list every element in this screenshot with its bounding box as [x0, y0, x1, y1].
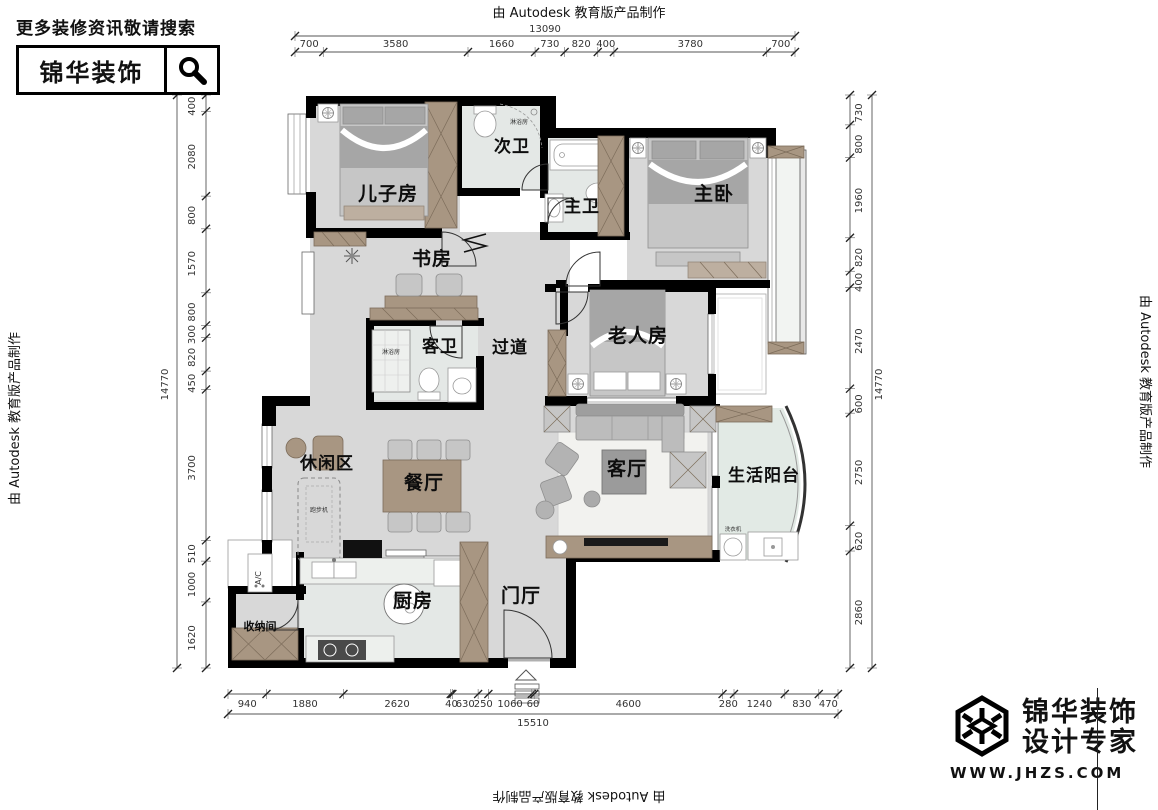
dimension-bottom: 9401880262040630250106060460028012408304…: [224, 689, 842, 729]
room-label-storage: 收纳间: [244, 619, 277, 633]
svg-text:700: 700: [300, 39, 319, 50]
label-ac: A/C: [254, 571, 263, 585]
room-label-bath2: 次卫: [494, 136, 530, 157]
svg-text:400: 400: [854, 273, 865, 292]
label-shower-bath2: 淋浴房: [510, 118, 528, 126]
svg-text:510: 510: [187, 544, 198, 563]
svg-text:3780: 3780: [678, 39, 703, 50]
svg-text:1620: 1620: [187, 625, 198, 650]
label-washer: 洗衣机: [725, 525, 742, 533]
svg-text:2750: 2750: [854, 460, 865, 485]
room-label-son-room: 儿子房: [357, 182, 418, 205]
room-label-living: 客厅: [607, 457, 647, 480]
room-label-master-bed: 主卧: [694, 183, 734, 205]
room-label-dining: 餐厅: [404, 471, 444, 494]
svg-text:1570: 1570: [187, 251, 198, 276]
dimension-left: 4002080800157080030082045037005101000162…: [160, 91, 211, 672]
cube-logo-icon: [950, 694, 1014, 762]
svg-text:470: 470: [819, 699, 838, 710]
svg-text:820: 820: [854, 248, 865, 267]
svg-text:1240: 1240: [747, 699, 772, 710]
svg-text:800: 800: [187, 206, 198, 225]
svg-text:800: 800: [854, 135, 865, 154]
foyer-furniture: [460, 542, 488, 662]
svg-text:14770: 14770: [874, 369, 885, 401]
watermark-top: 由 Autodesk 教育版产品制作: [493, 2, 666, 21]
svg-text:4600: 4600: [616, 699, 641, 710]
svg-text:400: 400: [187, 97, 198, 116]
svg-text:1960: 1960: [854, 188, 865, 213]
brand-logo: 锦华装饰 设计专家 WWW.JHZS.COM: [950, 694, 1155, 782]
room-label-balcony: 生活阳台: [728, 465, 800, 486]
svg-text:2860: 2860: [854, 600, 865, 625]
logo-subtitle: 设计专家: [1022, 728, 1138, 758]
search-promo: 更多装修资讯敬请搜索 锦华装饰: [16, 14, 220, 95]
svg-text:820: 820: [572, 39, 591, 50]
room-label-guest-bath: 客卫: [421, 336, 458, 357]
border-line: [1097, 688, 1098, 810]
dimension-right: 730800196082040024706002750620286014770: [845, 91, 885, 672]
room-label-master-bath: 主卫: [564, 196, 600, 217]
svg-text:730: 730: [854, 103, 865, 122]
svg-text:13090: 13090: [529, 24, 561, 35]
floorplan-canvas: 由 Autodesk 教育版产品制作 由 Autodesk 教育版产品制作 由 …: [0, 0, 1158, 810]
svg-text:14770: 14770: [160, 369, 171, 401]
svg-text:3580: 3580: [383, 39, 408, 50]
logo-brand: 锦华装饰: [1022, 698, 1138, 728]
svg-text:600: 600: [854, 394, 865, 413]
svg-text:700: 700: [771, 39, 790, 50]
svg-text:250: 250: [474, 699, 493, 710]
label-shower-gbath: 淋浴房: [382, 348, 400, 356]
svg-text:800: 800: [187, 303, 198, 322]
logo-names: 锦华装饰 设计专家: [1022, 698, 1138, 758]
promo-tagline: 更多装修资讯敬请搜索: [16, 14, 220, 39]
svg-text:630: 630: [456, 699, 475, 710]
floorplan-svg: 儿子房 次卫 主卫 主卧 书房 客卫 过道 老人房 休闲区 餐厅 客厅 生活阳台…: [0, 0, 1158, 810]
svg-text:280: 280: [719, 699, 738, 710]
svg-text:620: 620: [854, 532, 865, 551]
svg-text:60: 60: [527, 699, 540, 710]
svg-text:2620: 2620: [384, 699, 409, 710]
svg-text:1000: 1000: [187, 572, 198, 597]
room-label-study: 书房: [412, 247, 452, 270]
room-label-elder-room: 老人房: [608, 324, 668, 347]
svg-text:2080: 2080: [187, 144, 198, 169]
svg-text:300: 300: [187, 325, 198, 344]
svg-text:3700: 3700: [187, 455, 198, 480]
promo-brand: 锦华装饰: [19, 48, 167, 92]
promo-search-box: 锦华装饰: [16, 45, 220, 95]
svg-text:1060: 1060: [497, 699, 522, 710]
label-treadmill: 跑步机: [310, 506, 328, 514]
svg-text:730: 730: [540, 39, 559, 50]
svg-text:1660: 1660: [489, 39, 514, 50]
search-icon: [167, 48, 217, 92]
room-label-foyer: 门厅: [501, 584, 541, 607]
room-label-leisure: 休闲区: [299, 453, 354, 474]
logo-website: WWW.JHZS.COM: [950, 764, 1155, 782]
svg-text:2470: 2470: [854, 328, 865, 353]
svg-text:450: 450: [187, 374, 198, 393]
svg-text:15510: 15510: [517, 718, 549, 729]
svg-text:940: 940: [238, 699, 257, 710]
svg-text:400: 400: [596, 39, 615, 50]
watermark-right: 由 Autodesk 教育版产品制作: [1137, 295, 1156, 468]
room-label-corridor: 过道: [492, 337, 528, 358]
dimension-top: 70035801660730820400378070013090: [291, 24, 799, 57]
svg-text:830: 830: [792, 699, 811, 710]
svg-text:1880: 1880: [292, 699, 317, 710]
room-label-kitchen: 厨房: [393, 589, 433, 612]
watermark-left: 由 Autodesk 教育版产品制作: [4, 332, 23, 505]
svg-text:820: 820: [187, 348, 198, 367]
watermark-bottom: 由 Autodesk 教育版产品制作: [493, 788, 666, 807]
